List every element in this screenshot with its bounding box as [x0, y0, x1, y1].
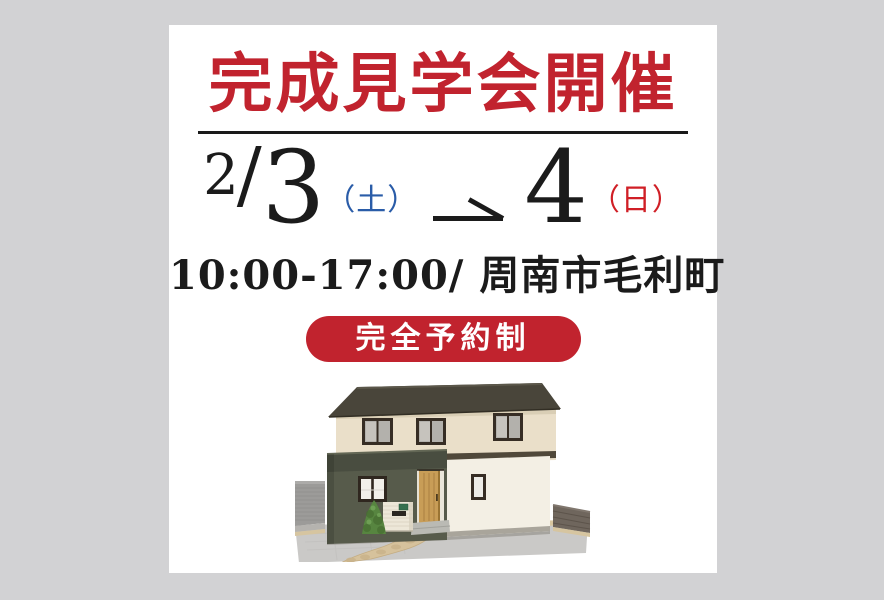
end-day: 4 [524, 138, 586, 238]
start-day: 3 [262, 138, 324, 238]
badge-row: 完全予約制 [169, 300, 717, 362]
start-weekday-label: （土） [325, 186, 418, 216]
house-illustration [293, 382, 593, 562]
hours-location: 10:00-17:00/ 周南市毛利町 [169, 252, 717, 300]
front-door [417, 470, 444, 524]
first-floor-wall [443, 456, 550, 537]
reservation-badge: 完全予約制 [306, 316, 581, 362]
event-dates: 2 / 3 （土） 4 （日） [169, 138, 717, 250]
left-fence [295, 481, 325, 536]
end-weekday-label: （日） [590, 186, 683, 216]
arrow-right-icon [432, 196, 506, 225]
flyer-card: 完成見学会開催 2 / 3 （土） 4 （日） 10:00-17:00/ 周南市… [169, 25, 717, 573]
event-month: 2 [203, 148, 239, 204]
flyer-background: 完成見学会開催 2 / 3 （土） 4 （日） 10:00-17:00/ 周南市… [0, 0, 884, 600]
entrance-window [358, 476, 387, 502]
page-title: 完成見学会開催 [169, 53, 717, 117]
gate-post [383, 502, 413, 531]
month-day-separator: / [237, 138, 262, 212]
